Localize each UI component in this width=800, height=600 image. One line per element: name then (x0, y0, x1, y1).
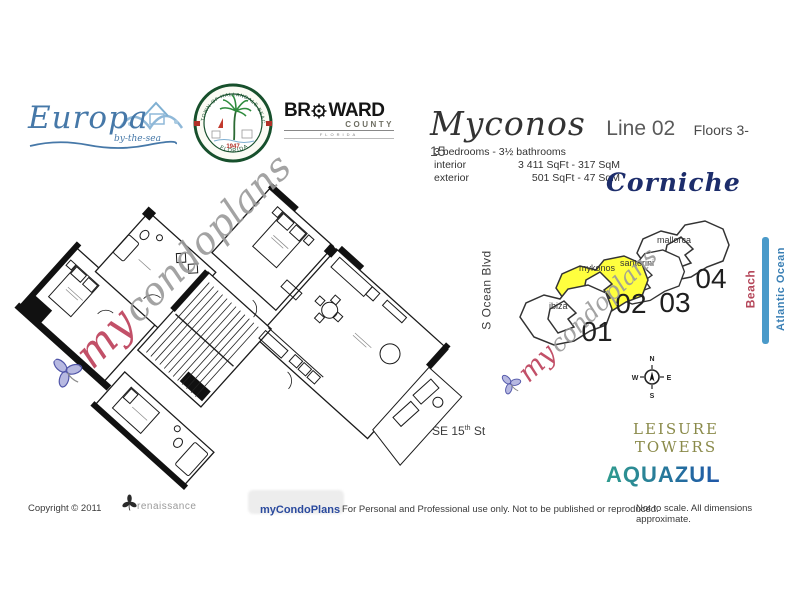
compass-w: W (632, 375, 639, 382)
compass-e: E (667, 375, 672, 382)
copyright-text: Copyright © 2011 (28, 503, 101, 514)
renaissance-text: renaissance (137, 501, 196, 512)
compass-s: S (650, 393, 655, 400)
unit-label-mallorca: mallorca (657, 235, 691, 245)
usage-text: For Personal and Professional use only. … (342, 504, 659, 515)
disclaimer-text: Not to scale. All dimensions approximate… (636, 503, 800, 525)
compass-rose: N W E S (630, 352, 674, 400)
atlantic-ocean-label: Atlantic Ocean (731, 282, 800, 296)
renaissance-logo: renaissance (122, 494, 196, 512)
street-label-s-ocean-blvd: S Ocean Blvd (432, 283, 542, 297)
brand-label: myCondoPlans (260, 504, 340, 516)
leisure-towers-label: LEISURE TOWERS (626, 420, 726, 456)
street-label-se-15th: SE 15th St (432, 424, 485, 438)
unit-number-03: 03 (659, 287, 690, 318)
aquazul-label: AQUAZUL (606, 462, 721, 488)
unit-label-ibiza: ibiza (549, 301, 568, 311)
floorplan-sheet: Europa by-the-sea TOWN OF HALLANDALE BEA… (0, 0, 800, 600)
trefoil-icon (122, 494, 137, 512)
compass-n: N (649, 356, 654, 363)
